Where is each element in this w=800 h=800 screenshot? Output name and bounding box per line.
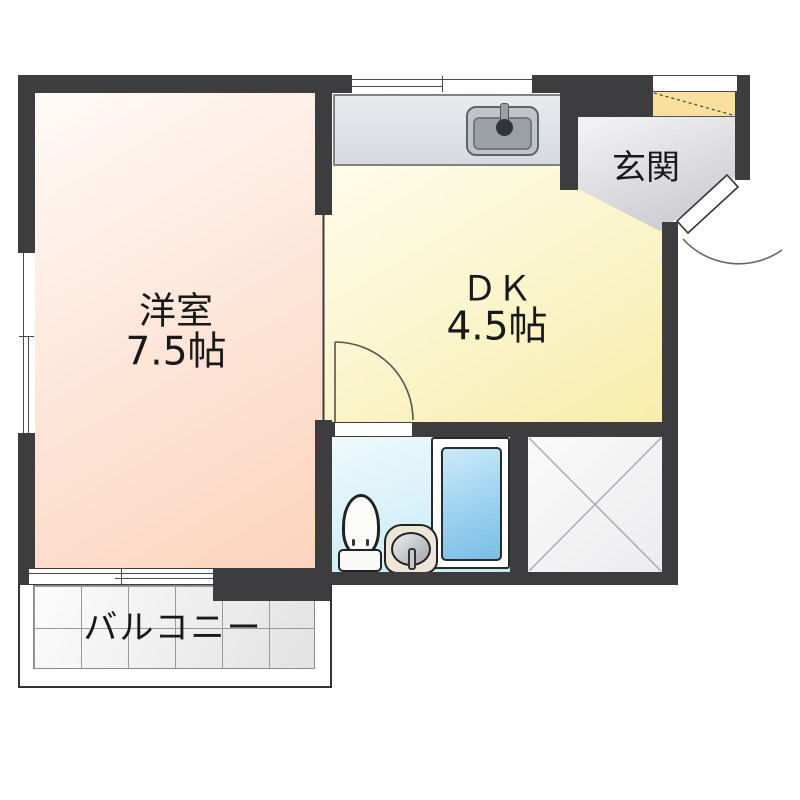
wall-bath-storage-divider (510, 437, 528, 572)
storage-floor (528, 437, 662, 572)
window-line (28, 336, 29, 433)
western-room-size: 7.5帖 (125, 333, 226, 372)
wall-left-lower (18, 433, 35, 583)
dk-label: ＤＫ (462, 273, 532, 308)
window-line (352, 86, 442, 87)
toilet-icon (342, 494, 380, 556)
washbasin-faucet (408, 548, 416, 570)
wall-top-right-corner (737, 75, 750, 92)
western-room-label: 洋室 (139, 293, 213, 330)
faucet-base (496, 119, 513, 136)
window-line (23, 253, 24, 433)
toilet-foot-right (366, 539, 369, 546)
entrance-label: 玄関 (612, 151, 680, 185)
balcony-window-icon (29, 569, 213, 584)
window-line (115, 578, 213, 579)
shoe-cabinet-icon (653, 92, 737, 117)
toilet-tank (338, 549, 382, 572)
bathtub-water (441, 447, 502, 561)
entrance-window-icon (653, 75, 737, 92)
wall-left-upper (18, 93, 35, 253)
wall-mid-lower (315, 420, 332, 585)
floorplan: 洋室 7.5帖 ＤＫ 4.5帖 玄関 バルコニー (0, 0, 800, 800)
wall-top-left (18, 75, 352, 93)
toilet-foot-left (352, 539, 355, 546)
door-swing-icon (683, 239, 782, 264)
dk-door-gap (335, 423, 412, 436)
window-tick (121, 569, 122, 584)
dk-size: 4.5帖 (446, 308, 547, 347)
wall-balcony-right-block (213, 585, 330, 601)
wall-entrance-top-block (578, 75, 653, 117)
window-tick (442, 76, 443, 92)
kitchen-window-icon (352, 76, 532, 92)
wall-dk-entrance-divider (560, 75, 578, 190)
wall-right-lower (662, 222, 678, 585)
wall-mid-upper (315, 93, 332, 215)
window-tick (19, 336, 34, 337)
left-window-icon (19, 253, 34, 433)
balcony-label: バルコニー (83, 611, 262, 645)
wall-right-upper (735, 92, 750, 180)
wall-bottom (315, 572, 678, 585)
